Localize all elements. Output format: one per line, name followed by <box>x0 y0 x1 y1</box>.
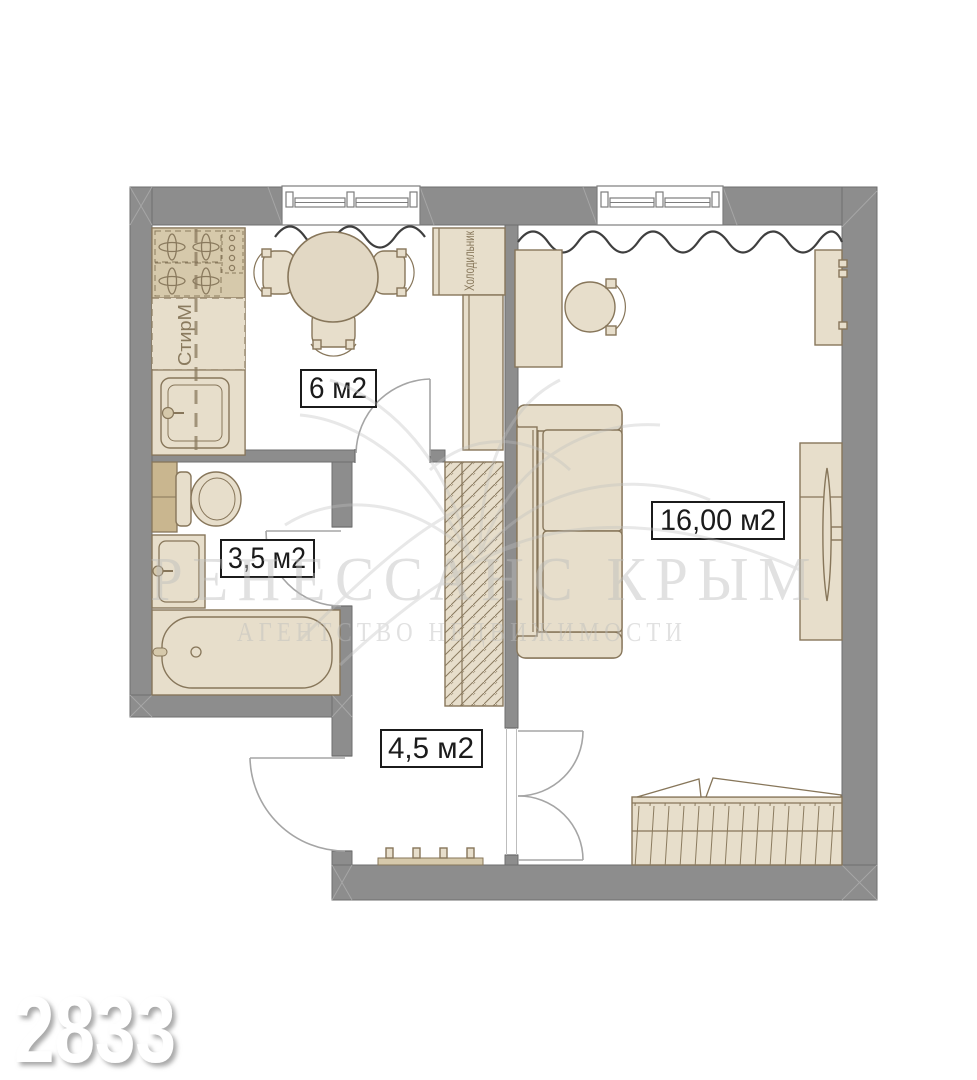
wall-bottom <box>332 865 877 900</box>
tv-icon <box>823 468 831 601</box>
shelf-icon <box>815 250 847 345</box>
bed-icon <box>632 778 842 865</box>
kitchen-window <box>282 186 420 225</box>
pillow <box>637 779 701 797</box>
watermark-agency-name: РЕНЕССАНС КРЫМ <box>150 546 820 614</box>
washing-machine-label: СтирМ <box>175 304 195 366</box>
tv-bracket <box>831 527 842 540</box>
living-window <box>597 186 723 225</box>
kitchen-area-text: 6 м2 <box>309 372 367 405</box>
wall-living-west-stub <box>505 855 518 865</box>
fridge-label: Холодильник <box>462 231 477 291</box>
floor-plan-page: СтирМ <box>0 0 977 1080</box>
floor-plan: СтирМ <box>0 0 977 1080</box>
area-label-kitchen: 6 м2 <box>301 370 376 407</box>
dining-table-icon <box>254 232 414 356</box>
wall-top-middle <box>420 187 597 225</box>
listing-number: 2833 <box>14 977 176 1080</box>
desk-chair-icon <box>565 279 625 335</box>
kitchen-sink-icon <box>152 370 245 455</box>
washing-machine-icon: СтирМ <box>152 298 245 370</box>
dining-table-top <box>288 232 378 322</box>
pillow <box>706 778 841 797</box>
chair-icon <box>373 249 414 296</box>
coat-hooks-icon <box>378 848 483 865</box>
bathroom-cabinet <box>152 462 177 532</box>
watermark-agency-tagline: АГЕНТСТВО НЕДВИЖИМОСТИ <box>237 617 687 647</box>
double-door-icon <box>518 731 583 860</box>
wall-left <box>130 187 152 717</box>
hallway-area-text: 4,5 м2 <box>388 732 474 765</box>
curtain-icon <box>518 232 842 253</box>
toilet-icon <box>176 472 241 526</box>
wall-bathroom-bottom <box>130 695 352 717</box>
wall-right <box>842 187 877 900</box>
kitchen-tall-cabinet <box>463 295 503 450</box>
wall-top-left <box>130 187 282 225</box>
area-label-living: 16,00 м2 <box>652 502 784 539</box>
desk-icon <box>515 250 562 367</box>
stove-icon <box>152 228 245 298</box>
wall-hall-west-3 <box>332 851 352 865</box>
entrance-door-icon <box>250 758 345 851</box>
fridge-icon: Холодильник <box>433 228 505 295</box>
area-label-hallway: 4,5 м2 <box>381 730 482 767</box>
